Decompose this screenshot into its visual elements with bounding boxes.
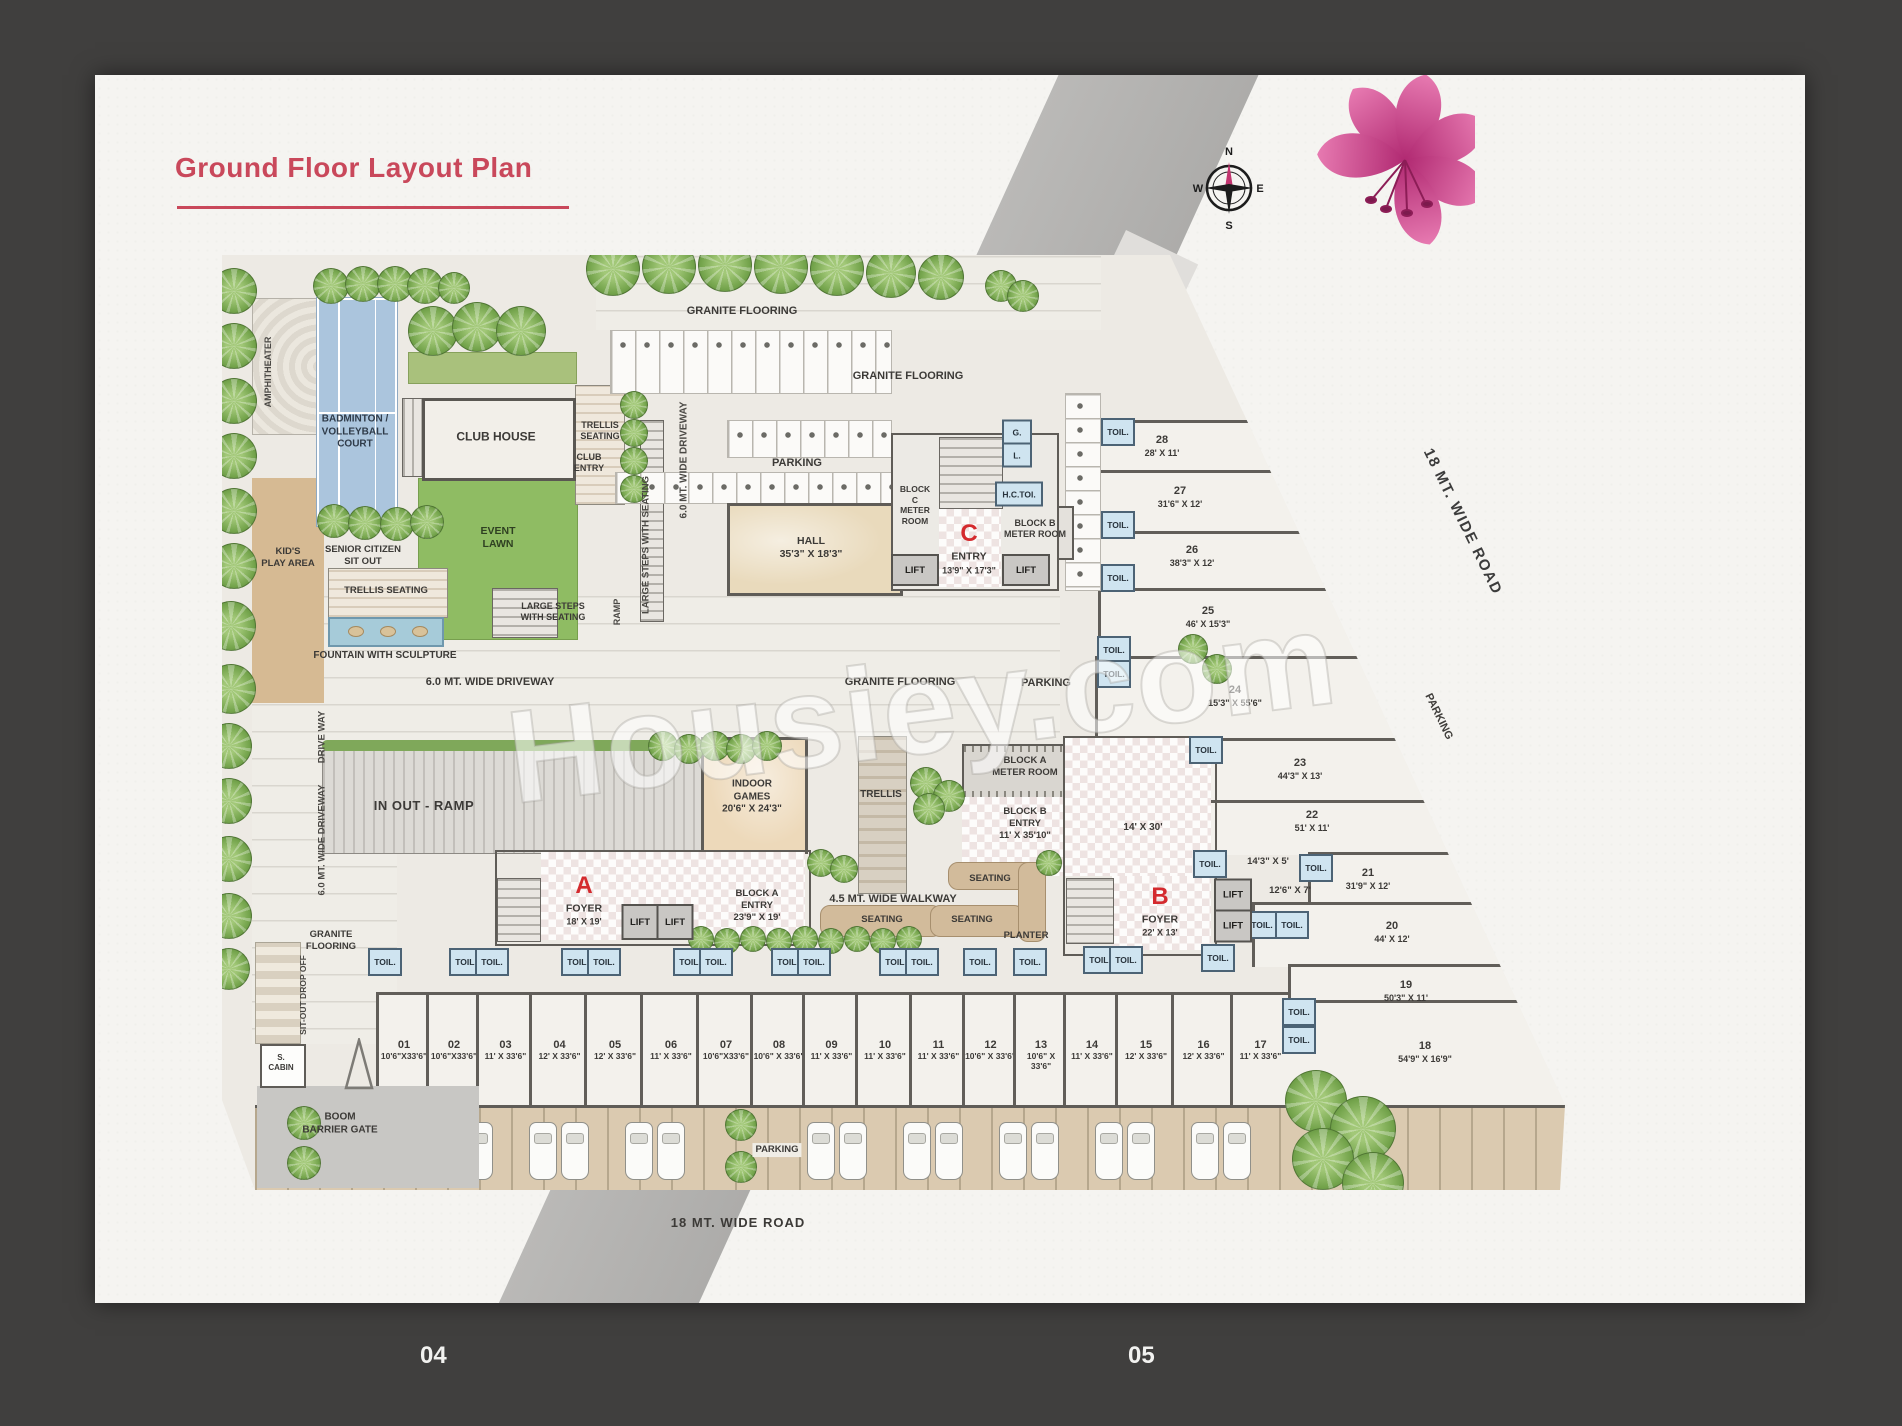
tree-icon — [206, 723, 252, 769]
shop-unit: 04 12' X 33'6" — [529, 992, 587, 1107]
shop-unit-label: 2638'3" X 12' — [1170, 544, 1215, 570]
gents-toilet-box: G. — [1002, 420, 1032, 445]
parking-mid-label: PARKING — [1021, 677, 1071, 691]
toilet-box: TOIL. — [699, 948, 733, 976]
seating-label-3: SEATING — [969, 873, 1011, 885]
tree-icon — [620, 391, 648, 419]
brochure-spread: 04 05 18 MT. WIDE ROAD PARKING — [0, 0, 1902, 1426]
badminton-court — [317, 298, 397, 526]
shop-unit: 15 12' X 33'6" — [1115, 992, 1174, 1107]
shop-unit: 14 11' X 33'6" — [1063, 992, 1118, 1107]
flower-decoration-icon — [1295, 75, 1475, 260]
layout-plan-page: 18 MT. WIDE ROAD PARKING — [95, 75, 1805, 1303]
tree-icon — [918, 254, 964, 300]
sit-out-label: SIT-OUT DROP OFF — [298, 955, 308, 1035]
boom-gate-label: BOOM BARRIER GATE — [302, 1112, 377, 1137]
fountain-label: FOUNTAIN WITH SCULPTURE — [313, 650, 456, 663]
tree-icon — [438, 272, 470, 304]
drive-way-label: DRIVE WAY — [317, 711, 328, 763]
tree-icon — [211, 488, 257, 534]
toilet-box: TOIL. — [1282, 1026, 1316, 1054]
toilet-box: TOIL. — [963, 948, 997, 976]
car-icon — [657, 1122, 685, 1180]
tree-icon — [317, 504, 351, 538]
foyer-a-size: 18' X 19' — [566, 916, 601, 927]
large-steps-v-label: LARGE STEPS WITH SEATING — [641, 476, 652, 614]
size-12-6-label: 12'6" X 7' — [1269, 885, 1311, 897]
entry-c-letter: C — [960, 519, 977, 549]
toilet-box: TOIL. — [1189, 736, 1223, 764]
compass-icon: N S W E — [1192, 145, 1266, 231]
tree-icon — [206, 778, 252, 824]
block-a-stairs — [497, 878, 541, 942]
tree-icon — [725, 1109, 757, 1141]
shop-unit: 12 10'6" X 33'6" — [962, 992, 1016, 1107]
bottom-road-label: 18 MT. WIDE ROAD — [671, 1215, 805, 1231]
shop-unit: 05 12' X 33'6" — [584, 992, 643, 1107]
car-icon — [839, 1122, 867, 1180]
tree-icon — [752, 731, 782, 761]
indoor-games-label: INDOOR GAMES 20'6" X 24'3" — [722, 778, 782, 816]
lift-box: LIFT — [1214, 879, 1252, 912]
block-c-meter-label: BLOCK C METER ROOM — [900, 484, 930, 527]
tree-icon — [810, 242, 864, 296]
car-icon — [903, 1122, 931, 1180]
shop-unit: 03 11' X 33'6" — [476, 992, 532, 1107]
ramp-hedge — [322, 740, 700, 751]
toilet-box: TOIL. — [1097, 660, 1131, 688]
toilet-box: TOIL. — [1193, 850, 1227, 878]
lift-box: LIFT — [891, 554, 939, 586]
toilet-box: TOIL. — [797, 948, 831, 976]
page-number-right: 05 — [1128, 1342, 1155, 1370]
car-icon — [529, 1122, 557, 1180]
car-icon — [1031, 1122, 1059, 1180]
driveway-v-left-label: 6.0 MT. WIDE DRIVEWAY — [317, 784, 328, 895]
tree-icon — [1342, 1152, 1404, 1214]
shop-unit: 10 11' X 33'6" — [855, 992, 912, 1107]
shop-unit: 07 10'6"X33'6" — [696, 992, 753, 1107]
compass-w: W — [1193, 183, 1204, 195]
car-icon — [1191, 1122, 1219, 1180]
two-wheeler-parking-row1 — [610, 330, 892, 394]
block-b-stairs — [1066, 878, 1114, 944]
walkway-label: 4.5 MT. WIDE WALKWAY — [829, 893, 956, 907]
compass-n: N — [1225, 146, 1233, 158]
tree-icon — [1202, 654, 1232, 684]
tree-icon — [211, 543, 257, 589]
event-lawn-label: EVENT LAWN — [480, 525, 515, 551]
parking-top-label: PARKING — [772, 457, 822, 471]
tree-icon — [206, 664, 256, 714]
parking-bottom-label: PARKING — [752, 1143, 801, 1157]
car-icon — [999, 1122, 1027, 1180]
trellis-walkway — [858, 736, 907, 894]
in-out-ramp-label: IN OUT - RAMP — [374, 798, 474, 814]
planter-label: PLANTER — [1004, 930, 1049, 942]
foyer-b-size: 22' X 13' — [1142, 927, 1177, 938]
shop-unit-label: 2415'3" X 55'6" — [1208, 684, 1262, 710]
toilet-box: TOIL. — [1101, 511, 1135, 539]
large-steps-label: LARGE STEPS WITH SEATING — [521, 601, 586, 624]
shop-unit — [1095, 656, 1613, 741]
entry-c-size: 13'9" X 17'3" — [942, 565, 996, 576]
shop-unit-label: 2828' X 11' — [1145, 434, 1180, 460]
shop-unit — [1195, 738, 1613, 803]
amphitheater-label: AMPHITHEATER — [263, 337, 273, 408]
kids-play-area — [252, 478, 324, 703]
toilet-box: TOIL. — [475, 948, 509, 976]
senior-citizen-label: SENIOR CITIZEN SIT OUT — [325, 544, 401, 568]
granite-top2-label: GRANITE FLOORING — [853, 370, 964, 384]
kids-play-label: KID'S PLAY AREA — [261, 546, 315, 570]
shop-unit — [1288, 964, 1613, 1003]
tree-icon — [211, 378, 257, 424]
page-number-left: 04 — [420, 1342, 447, 1370]
tree-icon — [866, 248, 916, 298]
hall-label: HALL 35'3" X 18'3" — [780, 535, 843, 561]
car-icon — [1223, 1122, 1251, 1180]
block-a-entry-label: BLOCK A ENTRY 23'9" X 19' — [733, 888, 780, 924]
tree-icon — [754, 240, 808, 294]
s-cabin-label: S. CABIN — [268, 1053, 293, 1073]
ladies-toilet-box: L. — [1002, 443, 1032, 468]
trellis-label: TRELLIS — [860, 789, 902, 802]
tree-icon — [452, 302, 502, 352]
toilet-box: TOIL. — [587, 948, 621, 976]
tree-icon — [586, 242, 640, 296]
shop-unit-label: 2344'3" X 13' — [1278, 757, 1323, 783]
compass-e: E — [1256, 183, 1263, 195]
badminton-label: BADMINTON / VOLLEYBALL COURT — [322, 413, 389, 451]
tree-icon — [844, 926, 870, 952]
shop-unit-label: 2731'6" X 12' — [1158, 485, 1203, 511]
tree-icon — [208, 948, 250, 990]
tree-icon — [410, 505, 444, 539]
tree-icon — [206, 893, 252, 939]
boom-barrier-icon — [344, 1038, 374, 1090]
tree-icon — [206, 601, 256, 651]
lift-box: LIFT — [622, 904, 659, 940]
toilet-box: TOIL. — [1101, 418, 1135, 446]
tree-icon — [740, 926, 766, 952]
toilet-box: TOIL. — [1282, 998, 1316, 1026]
shop-unit: 13 10'6" X 33'6" — [1013, 992, 1066, 1107]
car-icon — [1127, 1122, 1155, 1180]
toilet-box: TOIL. — [1201, 944, 1235, 972]
club-trellis-label: TRELLIS SEATING — [580, 420, 619, 443]
tree-icon — [496, 306, 546, 356]
lift-box: LIFT — [1002, 554, 1050, 586]
block-b-entry-label: BLOCK B ENTRY 11' X 35'10" — [999, 806, 1051, 842]
toilet-box: TOIL. — [1109, 946, 1143, 974]
toilet-box: TOIL. — [368, 948, 402, 976]
toilet-box: TOIL. — [905, 948, 939, 976]
shop-unit: 09 11' X 33'6" — [802, 992, 858, 1107]
side-road-label: 18 MT. WIDE ROAD — [1418, 446, 1505, 599]
tree-icon — [1007, 280, 1039, 312]
shop-unit: 08 10'6" X 33'6" — [750, 992, 805, 1107]
driveway-h-label: 6.0 MT. WIDE DRIVEWAY — [426, 676, 555, 690]
trellis-seating-label: TRELLIS SEATING — [344, 585, 428, 597]
sit-out-drop-off-strip — [255, 942, 301, 1044]
toilet-box: TOIL. — [1101, 564, 1135, 592]
compass-s: S — [1225, 220, 1232, 231]
tree-icon — [211, 268, 257, 314]
tree-icon — [830, 855, 858, 883]
granite-left-label: GRANITE FLOORING — [306, 929, 356, 953]
tree-icon — [1178, 634, 1208, 664]
shop-unit — [1098, 588, 1613, 659]
fountain — [328, 617, 444, 647]
two-wheeler-parking-col — [1065, 393, 1101, 591]
toilet-box: TOIL. — [1299, 854, 1333, 882]
tree-icon — [1036, 850, 1062, 876]
size-14-3-label: 14'3" X 5' — [1247, 856, 1289, 868]
car-icon — [625, 1122, 653, 1180]
tree-icon — [913, 793, 945, 825]
shop-unit-label: 2251' X 11' — [1295, 809, 1330, 835]
foyer-a-word: FOYER — [566, 902, 602, 915]
tree-icon — [620, 419, 648, 447]
block-c-stairs — [939, 437, 1003, 509]
hc-toilet-box: H.C.TOI. — [995, 482, 1043, 507]
tree-icon — [206, 836, 252, 882]
shop-unit: 17 11' X 33'6" — [1230, 992, 1288, 1107]
toilet-box: TOIL. — [1013, 948, 1047, 976]
tree-icon — [287, 1146, 321, 1180]
block-a-meter-label: BLOCK A METER ROOM — [992, 755, 1057, 779]
block-b-meter-label: BLOCK B METER ROOM — [1004, 518, 1066, 541]
car-icon — [935, 1122, 963, 1180]
seating-label-1: SEATING — [861, 914, 903, 926]
roadside-parking-label: PARKING — [1421, 692, 1455, 743]
shop-unit-label: 2546' X 15'3" — [1186, 605, 1231, 631]
club-house-steps — [402, 398, 424, 477]
lift-box: LIFT — [657, 904, 694, 940]
shop-unit: 16 12' X 33'6" — [1171, 992, 1233, 1107]
shop-unit: 11 11' X 33'6" — [909, 992, 965, 1107]
car-icon — [561, 1122, 589, 1180]
tree-icon — [698, 238, 752, 292]
tree-icon — [642, 240, 696, 294]
lift-box: LIFT — [1214, 910, 1252, 943]
club-house-label: CLUB HOUSE — [456, 430, 535, 445]
seating-label-2: SEATING — [951, 914, 993, 926]
tree-icon — [620, 447, 648, 475]
granite-top-label: GRANITE FLOORING — [687, 305, 798, 319]
page-title: Ground Floor Layout Plan — [175, 152, 532, 184]
shop-unit-label: 2131'9" X 12' — [1346, 867, 1391, 893]
shop-unit: 06 11' X 33'6" — [640, 992, 699, 1107]
club-entry-label: CLUB ENTRY — [574, 452, 604, 475]
ramp-label: RAMP — [612, 599, 622, 626]
two-wheeler-parking-row2 — [727, 420, 892, 458]
car-icon — [1095, 1122, 1123, 1180]
tree-icon — [211, 323, 257, 369]
tree-icon — [211, 433, 257, 479]
granite-mid-label: GRANITE FLOORING — [845, 676, 956, 690]
area-14x30-label: 14' X 30' — [1123, 822, 1162, 835]
shop-unit-label: 1950'3" X 11' — [1384, 979, 1428, 1005]
tree-icon — [345, 266, 381, 302]
foyer-b-word: FOYER — [1142, 913, 1178, 926]
toilet-box: TOIL. — [1275, 911, 1309, 939]
driveway-v-right-label: 6.0 MT. WIDE DRIVEWAY — [679, 402, 690, 519]
entry-c-word: ENTRY — [951, 550, 986, 563]
car-icon — [807, 1122, 835, 1180]
lawn-strip — [408, 352, 577, 384]
two-wheeler-parking-row3 — [615, 472, 892, 504]
foyer-b-letter: B — [1151, 882, 1168, 912]
tree-icon — [313, 268, 349, 304]
shop-unit-label: 1854'9" X 16'9" — [1398, 1040, 1452, 1066]
title-underline — [177, 206, 569, 209]
tree-icon — [408, 306, 458, 356]
tree-icon — [380, 507, 414, 541]
tree-icon — [348, 506, 382, 540]
shop-unit-label: 2044' X 12' — [1374, 920, 1409, 946]
foyer-a-letter: A — [575, 871, 592, 901]
shop-unit — [1195, 800, 1613, 855]
